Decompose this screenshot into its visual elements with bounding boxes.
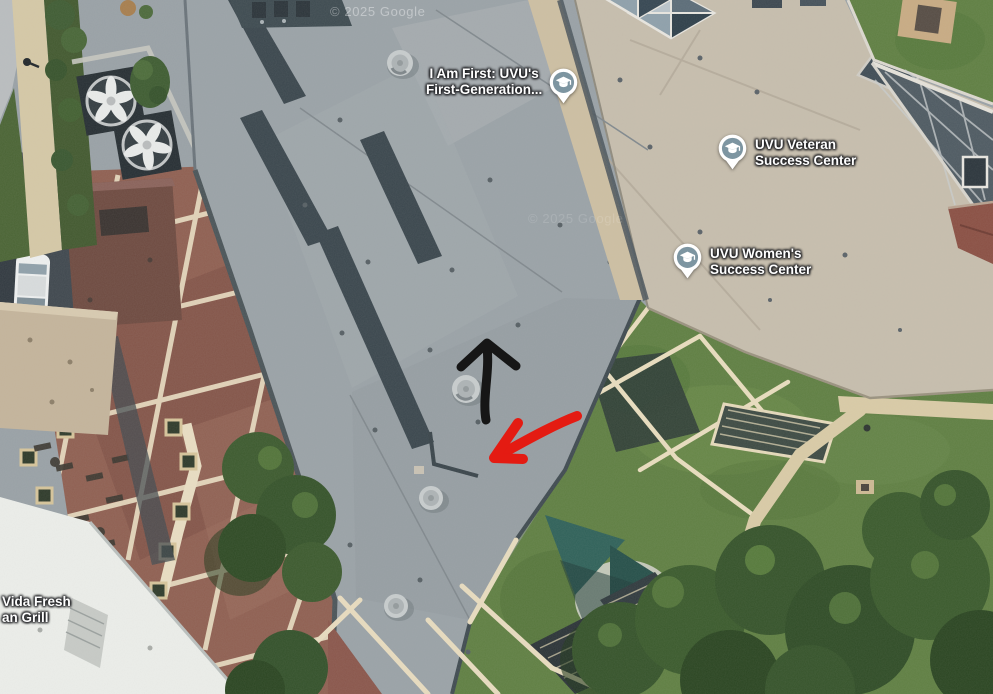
poi-label: UVU Women's Success Center — [710, 246, 811, 277]
poi-label: UVU Veteran Success Center — [755, 137, 856, 168]
poi-i-am-first[interactable]: I Am First: UVU's First-Generation... — [426, 66, 578, 104]
graduation-cap-pin-icon — [718, 134, 747, 170]
poi-uvu-veteran-success-center[interactable]: UVU Veteran Success Center — [718, 137, 856, 170]
grain-overlay — [0, 0, 993, 694]
poi-vida-fresh-grill[interactable]: Vida Fresh an Grill — [2, 594, 71, 625]
graduation-cap-pin-icon — [549, 68, 578, 104]
poi-label: I Am First: UVU's First-Generation... — [426, 66, 542, 97]
graduation-cap-pin-icon — [673, 243, 702, 279]
satellite-scene — [0, 0, 993, 694]
poi-uvu-womens-success-center[interactable]: UVU Women's Success Center — [673, 246, 811, 279]
poi-label: Vida Fresh an Grill — [2, 594, 71, 625]
map-canvas[interactable]: © 2025 Google © 2025 Google I Am First: … — [0, 0, 993, 694]
google-watermark: © 2025 Google — [330, 4, 425, 19]
imagery-watermark: © 2025 Google — [528, 211, 623, 226]
